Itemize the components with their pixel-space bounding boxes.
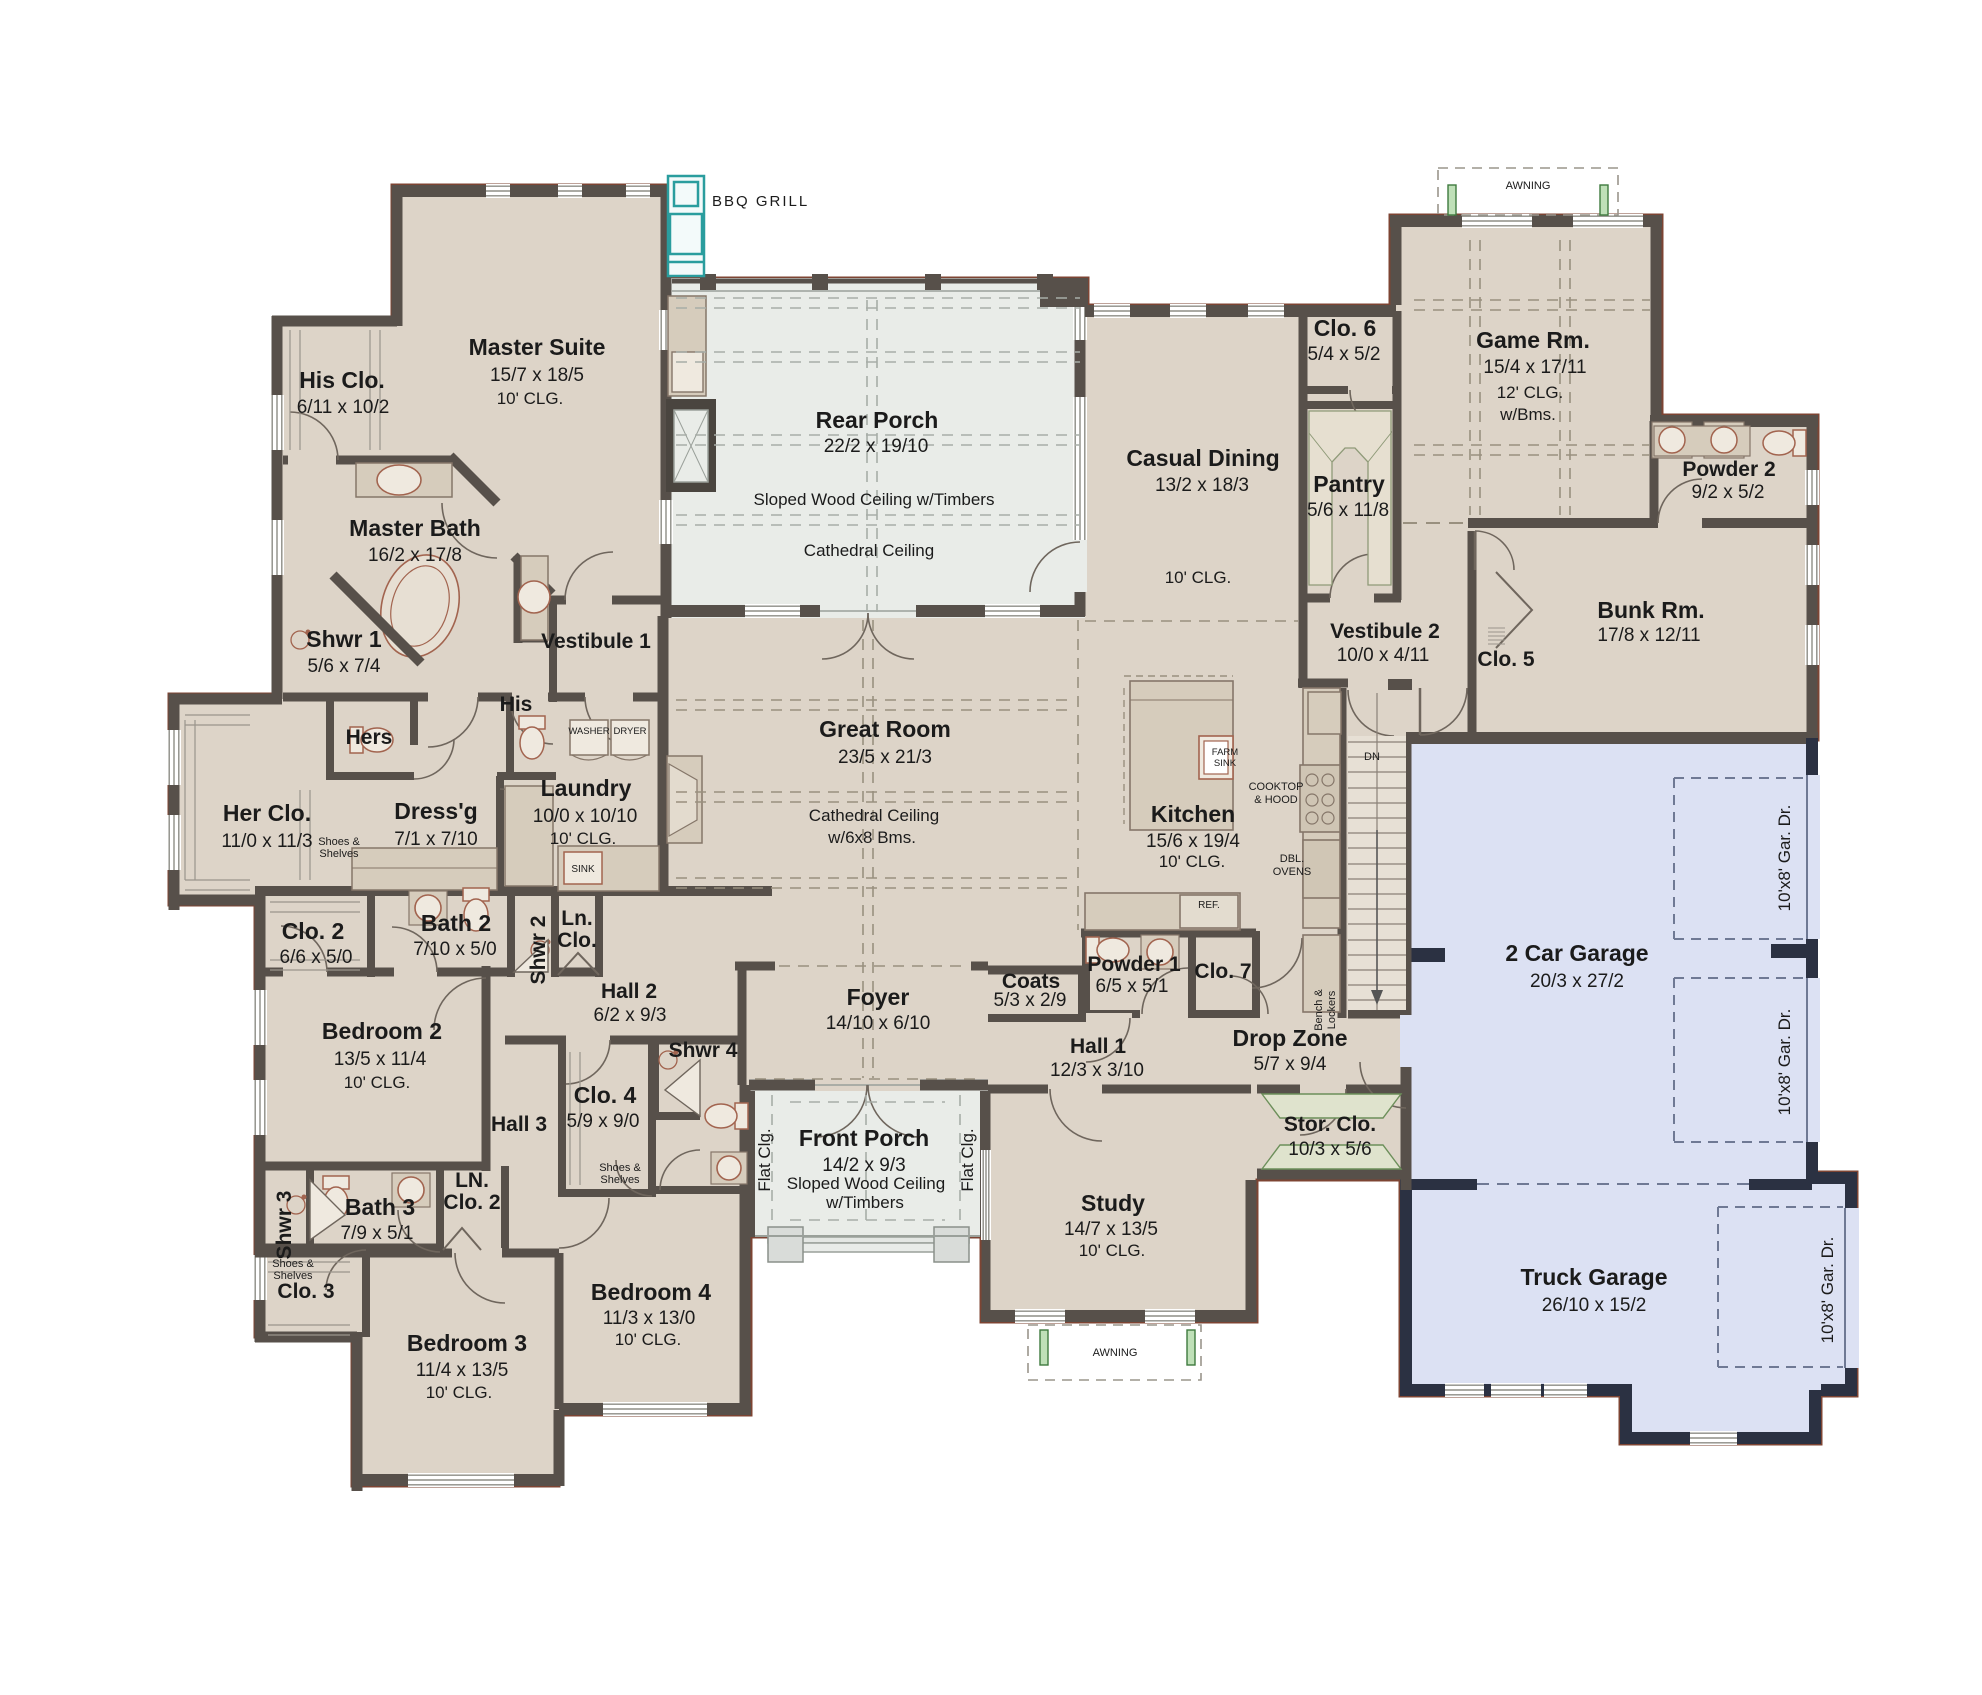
svg-text:10' CLG.: 10' CLG.: [1079, 1241, 1146, 1260]
svg-text:10' CLG.: 10' CLG.: [344, 1073, 411, 1092]
svg-text:7/9 x 5/1: 7/9 x 5/1: [341, 1223, 414, 1244]
svg-text:13/2 x 18/3: 13/2 x 18/3: [1155, 475, 1249, 496]
svg-text:Clo. 3: Clo. 3: [277, 1280, 334, 1303]
svg-text:10/3 x 5/6: 10/3 x 5/6: [1288, 1139, 1371, 1160]
svg-text:Game Rm.: Game Rm.: [1476, 327, 1590, 353]
svg-text:7/10 x 5/0: 7/10 x 5/0: [413, 939, 496, 960]
svg-text:Ln.: Ln.: [561, 907, 593, 930]
svg-text:Bunk Rm.: Bunk Rm.: [1597, 597, 1704, 623]
svg-text:Pantry: Pantry: [1313, 471, 1385, 497]
svg-text:FARM: FARM: [1212, 747, 1238, 758]
svg-text:Shelves: Shelves: [600, 1174, 640, 1186]
svg-text:Master Suite: Master Suite: [469, 334, 606, 360]
svg-text:12/3 x 3/10: 12/3 x 3/10: [1050, 1060, 1144, 1081]
svg-text:His Clo.: His Clo.: [299, 367, 385, 393]
svg-text:Clo. 7: Clo. 7: [1194, 960, 1251, 983]
svg-text:5/6 x 11/8: 5/6 x 11/8: [1307, 500, 1389, 521]
svg-text:Bedroom 2: Bedroom 2: [322, 1018, 442, 1044]
svg-text:Vestibule 1: Vestibule 1: [541, 630, 651, 653]
svg-text:OVENS: OVENS: [1273, 866, 1312, 878]
svg-text:Cathedral Ceiling: Cathedral Ceiling: [804, 541, 934, 560]
svg-text:Laundry: Laundry: [541, 775, 632, 801]
svg-text:Shoes &: Shoes &: [272, 1258, 314, 1270]
svg-text:Clo. 4: Clo. 4: [574, 1082, 637, 1108]
svg-text:Bath 3: Bath 3: [345, 1194, 415, 1220]
svg-text:Clo.: Clo.: [557, 929, 597, 952]
svg-text:11/0 x 11/3: 11/0 x 11/3: [221, 831, 312, 852]
svg-text:23/5 x 21/3: 23/5 x 21/3: [838, 747, 932, 768]
svg-text:15/7 x 18/5: 15/7 x 18/5: [490, 365, 584, 386]
svg-text:10' CLG.: 10' CLG.: [1159, 852, 1226, 871]
svg-text:Her Clo.: Her Clo.: [223, 800, 311, 826]
svg-text:REF.: REF.: [1198, 900, 1220, 911]
svg-text:Truck Garage: Truck Garage: [1520, 1264, 1667, 1290]
svg-text:COOKTOP: COOKTOP: [1249, 781, 1304, 793]
svg-text:DBL.: DBL.: [1280, 853, 1304, 865]
svg-text:Sloped Wood Ceiling: Sloped Wood Ceiling: [787, 1174, 945, 1193]
svg-text:Shwr 2: Shwr 2: [527, 916, 550, 985]
svg-text:5/6 x 7/4: 5/6 x 7/4: [308, 656, 381, 677]
svg-text:10'x8' Gar. Dr.: 10'x8' Gar. Dr.: [1818, 1237, 1837, 1344]
svg-text:Sloped Wood Ceiling w/Timbers: Sloped Wood Ceiling w/Timbers: [754, 490, 995, 509]
svg-text:13/5 x 11/4: 13/5 x 11/4: [334, 1049, 427, 1070]
svg-text:10/0 x 4/11: 10/0 x 4/11: [1337, 645, 1430, 666]
svg-text:10'x8' Gar. Dr.: 10'x8' Gar. Dr.: [1775, 805, 1794, 912]
svg-text:w/6x8 Bms.: w/6x8 Bms.: [827, 828, 916, 847]
svg-text:His: His: [500, 693, 533, 716]
svg-text:Foyer: Foyer: [847, 984, 910, 1010]
svg-text:Bedroom 4: Bedroom 4: [591, 1279, 711, 1305]
svg-text:Cathedral Ceiling: Cathedral Ceiling: [809, 806, 939, 825]
svg-text:Clo. 2: Clo. 2: [443, 1191, 500, 1214]
svg-text:Hall 2: Hall 2: [601, 980, 657, 1003]
svg-text:6/6 x 5/0: 6/6 x 5/0: [280, 947, 353, 968]
svg-text:BBQ GRILL: BBQ GRILL: [712, 193, 809, 210]
svg-text:15/4 x 17/11: 15/4 x 17/11: [1483, 357, 1586, 378]
svg-text:Shwr 1: Shwr 1: [306, 626, 382, 652]
svg-text:Clo. 6: Clo. 6: [1314, 315, 1377, 341]
svg-text:5/7 x 9/4: 5/7 x 9/4: [1254, 1054, 1327, 1075]
svg-text:6/5 x 5/1: 6/5 x 5/1: [1096, 976, 1169, 997]
svg-text:Clo. 2: Clo. 2: [282, 918, 345, 944]
svg-text:Shoes &: Shoes &: [599, 1162, 641, 1174]
svg-text:26/10 x 15/2: 26/10 x 15/2: [1542, 1295, 1647, 1316]
svg-text:Front Porch: Front Porch: [799, 1125, 929, 1151]
svg-text:Shoes &: Shoes &: [318, 836, 360, 848]
svg-text:Vestibule 2: Vestibule 2: [1330, 620, 1440, 643]
svg-text:5/4 x 5/2: 5/4 x 5/2: [1308, 344, 1381, 365]
svg-text:16/2 x 17/8: 16/2 x 17/8: [368, 545, 462, 566]
svg-text:15/6 x 19/4: 15/6 x 19/4: [1146, 831, 1240, 852]
svg-text:Powder 1: Powder 1: [1087, 953, 1181, 976]
svg-text:Bath 2: Bath 2: [421, 910, 491, 936]
svg-text:Flat Clg.: Flat Clg.: [755, 1128, 774, 1191]
svg-text:LN.: LN.: [455, 1169, 489, 1192]
svg-text:Flat Clg.: Flat Clg.: [958, 1128, 977, 1191]
svg-text:7/1 x 7/10: 7/1 x 7/10: [394, 829, 477, 850]
svg-text:10'x8' Gar. Dr.: 10'x8' Gar. Dr.: [1775, 1009, 1794, 1116]
svg-text:& HOOD: & HOOD: [1254, 794, 1297, 806]
svg-text:5/9 x 9/0: 5/9 x 9/0: [567, 1111, 640, 1132]
svg-text:Shelves: Shelves: [319, 848, 359, 860]
svg-text:Powder 2: Powder 2: [1682, 458, 1775, 481]
svg-text:6/11 x 10/2: 6/11 x 10/2: [297, 397, 390, 418]
svg-text:DN: DN: [1364, 751, 1380, 763]
svg-text:Kitchen: Kitchen: [1151, 801, 1235, 827]
svg-text:Clo. 5: Clo. 5: [1477, 648, 1534, 671]
svg-text:10' CLG.: 10' CLG.: [615, 1330, 682, 1349]
svg-text:10' CLG.: 10' CLG.: [497, 389, 564, 408]
svg-text:Hers: Hers: [346, 726, 393, 749]
svg-text:Casual Dining: Casual Dining: [1126, 445, 1279, 471]
svg-text:Hall 1: Hall 1: [1070, 1035, 1126, 1058]
svg-text:AWNING: AWNING: [1506, 180, 1551, 192]
svg-text:w/Timbers: w/Timbers: [825, 1193, 904, 1212]
svg-text:DRYER: DRYER: [613, 726, 646, 737]
svg-text:2 Car Garage: 2 Car Garage: [1505, 940, 1648, 966]
svg-text:Master Bath: Master Bath: [349, 515, 481, 541]
svg-text:Hall 3: Hall 3: [491, 1113, 547, 1136]
svg-text:17/8 x 12/11: 17/8 x 12/11: [1597, 625, 1700, 646]
svg-text:WASHER: WASHER: [568, 726, 609, 737]
svg-text:22/2 x 19/10: 22/2 x 19/10: [824, 436, 929, 457]
svg-text:AWNING: AWNING: [1093, 1347, 1138, 1359]
svg-text:Bedroom 3: Bedroom 3: [407, 1330, 527, 1356]
svg-text:10' CLG.: 10' CLG.: [1165, 568, 1232, 587]
svg-text:Rear Porch: Rear Porch: [816, 407, 939, 433]
svg-text:14/2 x 9/3: 14/2 x 9/3: [822, 1155, 905, 1176]
svg-text:11/3 x 13/0: 11/3 x 13/0: [603, 1308, 696, 1329]
svg-text:14/10 x 6/10: 14/10 x 6/10: [826, 1013, 931, 1034]
svg-text:Shwr 3: Shwr 3: [273, 1191, 296, 1260]
svg-text:SINK: SINK: [1214, 758, 1237, 769]
svg-text:SINK: SINK: [571, 864, 595, 875]
svg-text:10' CLG.: 10' CLG.: [550, 829, 617, 848]
svg-text:Shwr 4: Shwr 4: [669, 1039, 738, 1062]
svg-text:w/Bms.: w/Bms.: [1499, 405, 1556, 424]
svg-text:11/4 x 13/5: 11/4 x 13/5: [416, 1360, 509, 1381]
svg-text:Study: Study: [1081, 1190, 1145, 1216]
svg-text:10/0 x 10/10: 10/0 x 10/10: [533, 806, 638, 827]
svg-text:14/7 x 13/5: 14/7 x 13/5: [1064, 1219, 1158, 1240]
svg-text:10' CLG.: 10' CLG.: [426, 1383, 493, 1402]
svg-text:20/3 x 27/2: 20/3 x 27/2: [1530, 971, 1624, 992]
svg-text:5/3 x 2/9: 5/3 x 2/9: [994, 990, 1067, 1011]
svg-text:12' CLG.: 12' CLG.: [1497, 383, 1564, 402]
svg-text:Stor. Clo.: Stor. Clo.: [1284, 1113, 1376, 1136]
svg-text:Dress'g: Dress'g: [394, 798, 477, 824]
svg-text:Great Room: Great Room: [819, 716, 951, 742]
svg-text:6/2 x 9/3: 6/2 x 9/3: [594, 1005, 667, 1026]
svg-text:Lockers: Lockers: [1326, 990, 1338, 1029]
svg-text:Drop Zone: Drop Zone: [1233, 1025, 1348, 1051]
svg-text:9/2 x 5/2: 9/2 x 5/2: [1692, 482, 1765, 503]
